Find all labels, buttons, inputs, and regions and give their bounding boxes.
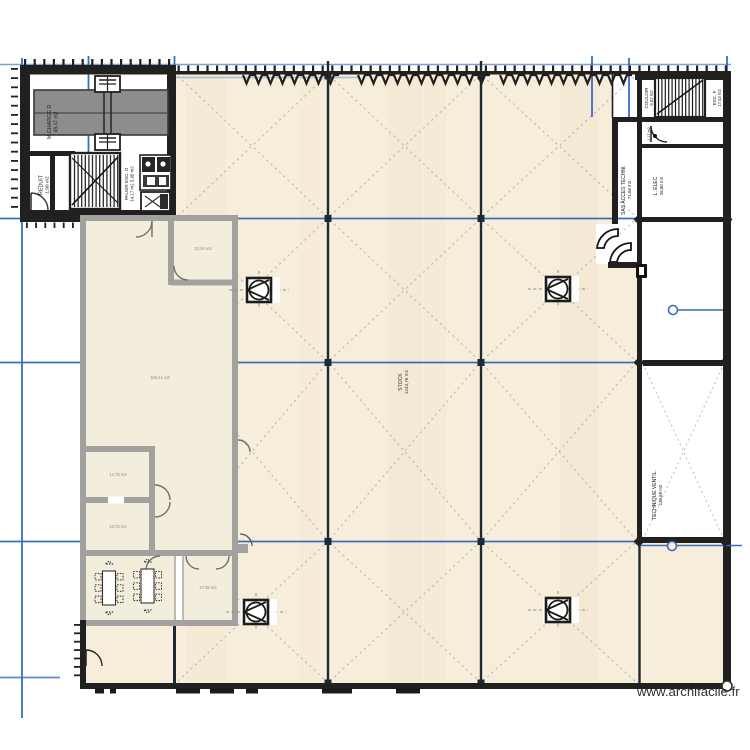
svg-text:17,09 m2: 17,09 m2 [199,585,217,590]
svg-text:5,52 m2: 5,52 m2 [649,90,654,106]
svg-text:166,41 m2: 166,41 m2 [150,375,170,380]
svg-text:71,68 m2: 71,68 m2 [627,180,632,199]
svg-text:1,17 m2: 1,17 m2 [647,127,651,141]
svg-text:1243,76 m2: 1243,76 m2 [404,369,409,394]
svg-text:17,43 m2: 17,43 m2 [717,89,722,107]
svg-text:10,04 m2: 10,04 m2 [194,246,212,251]
svg-text:PALIER ESC. D: PALIER ESC. D [124,167,129,200]
svg-text:M.CHARGE D: M.CHARGE D [47,105,53,140]
svg-text:28,80 m2: 28,80 m2 [659,176,664,195]
svg-text:1,99 m2: 1,99 m2 [45,176,51,194]
svg-text:10,70 m2: 10,70 m2 [109,524,127,529]
svg-text:14,17 m2 5,95 m2: 14,17 m2 5,95 m2 [129,166,134,202]
svg-text:49,47 m2: 49,47 m2 [54,111,60,132]
svg-text:REDUIT: REDUIT [39,174,45,195]
svg-text:128,88 m2: 128,88 m2 [658,484,663,505]
svg-text:14,75 m2: 14,75 m2 [109,472,127,477]
svg-text:www.archifacile.fr: www.archifacile.fr [636,684,740,699]
